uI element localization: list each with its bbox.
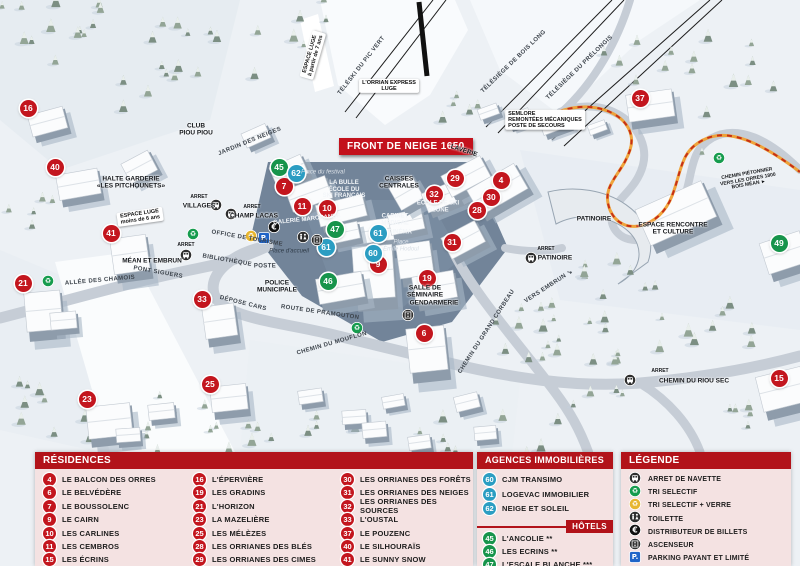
- legend-item-15: 15LES ÉCRINS: [43, 553, 109, 566]
- map-marker-residence-19[interactable]: 19: [419, 270, 436, 287]
- map-marker-residence-32[interactable]: 32: [426, 186, 443, 203]
- legend-item-19: 19LES GRADINS: [193, 486, 265, 499]
- legende-item-bus: ARRET DE NAVETTE: [629, 473, 721, 486]
- badge-21: 21: [193, 500, 206, 513]
- badge-10: 10: [43, 527, 56, 540]
- badge-7: 7: [43, 500, 56, 513]
- badge-23: 23: [193, 513, 206, 526]
- legend-item-40: 40LE SILHOURAÏS: [341, 540, 421, 553]
- map-marker-residence-31[interactable]: 31: [444, 234, 461, 251]
- legend-item-47: 47L'ESCALE BLANCHE ***: [483, 558, 592, 566]
- legend-item-label: LES ORRIANES DES NEIGES: [360, 488, 469, 497]
- legend-item-46: 46LES ECRINS **: [483, 545, 558, 558]
- legend-item-label: LE BOUSSOLENC: [62, 502, 129, 511]
- legend-item-7: 7LE BOUSSOLENC: [43, 500, 129, 513]
- panel-legende-body: ARRET DE NAVETTE♻TRI SELECTIF♻TRI SELECT…: [621, 469, 791, 566]
- badge-60: 60: [483, 473, 496, 486]
- map-marker-residence-6[interactable]: 6: [416, 325, 433, 342]
- map-marker-agence-62[interactable]: 62: [288, 165, 305, 182]
- legend-item-label: LE BELVÉDÈRE: [62, 488, 121, 497]
- legend-item-60: 60CJM TRANSIMO: [483, 473, 562, 486]
- map-marker-residence-16[interactable]: 16: [20, 100, 37, 117]
- panel-hotels-title: HÔTELS: [566, 520, 613, 533]
- badge-30: 30: [341, 473, 354, 486]
- legend-item-label: LES ORRIANES DES CIMES: [212, 555, 316, 564]
- map-marker-hotel-47[interactable]: 47: [327, 221, 344, 238]
- legend-item-label: NEIGE ET SOLEIL: [502, 504, 569, 513]
- badge-40: 40: [341, 540, 354, 553]
- map-marker-residence-25[interactable]: 25: [202, 376, 219, 393]
- legend-item-4: 4LE BALCON DES ORRES: [43, 473, 156, 486]
- map-marker-residence-21[interactable]: 21: [15, 275, 32, 292]
- legend-item-25: 25LES MÉLÈZES: [193, 527, 266, 540]
- legende-item-label: TOILETTE: [648, 516, 683, 523]
- map-marker-residence-10[interactable]: 10: [319, 200, 336, 217]
- legend-item-label: LE POUZENC: [360, 529, 410, 538]
- legend-item-30: 30LES ORRIANES DES FORÊTS: [341, 473, 471, 486]
- parking-icon: P.: [629, 550, 641, 566]
- map-marker-hotel-45[interactable]: 45: [271, 159, 288, 176]
- legende-item-label: TRI SELECTIF: [648, 489, 697, 496]
- legend-item-label: LE SILHOURAÏS: [360, 542, 421, 551]
- legend-item-10: 10LES CARLINES: [43, 527, 119, 540]
- legende-item-label: ARRET DE NAVETTE: [648, 476, 721, 483]
- legend-item-21: 21L'HORIZON: [193, 500, 255, 513]
- legend-item-label: LES CEMBROS: [62, 542, 119, 551]
- svg-text:♻: ♻: [632, 500, 638, 508]
- legend-item-label: LES ORRIANES DES BLÉS: [212, 542, 312, 551]
- legend-item-37: 37LE POUZENC: [341, 527, 410, 540]
- legende-item-recycle-glass: ♻TRI SELECTIF + VERRE: [629, 499, 731, 512]
- map-marker-residence-23[interactable]: 23: [79, 391, 96, 408]
- legend-item-label: LES ORRIANES DES FORÊTS: [360, 475, 471, 484]
- badge-15: 15: [43, 553, 56, 566]
- legend-item-label: L'HORIZON: [212, 502, 255, 511]
- legend-item-41: 41LE SUNNY SNOW: [341, 553, 426, 566]
- panel-agences: AGENCES IMMOBILIÈRES HÔTELS 60CJM TRANSI…: [477, 452, 613, 566]
- legend-item-9: 9LE CAIRN: [43, 513, 99, 526]
- badge-19: 19: [193, 486, 206, 499]
- legend-item-label: LES GRADINS: [212, 488, 265, 497]
- map-marker-hotel-46[interactable]: 46: [320, 273, 337, 290]
- legend-item-62: 62NEIGE ET SOLEIL: [483, 502, 569, 515]
- legende-item-label: PARKING PAYANT ET LIMITÉ: [648, 555, 749, 562]
- svg-text:♻: ♻: [632, 487, 638, 495]
- badge-61: 61: [483, 488, 496, 501]
- resort-map-page: FRONT DE NEIGE 1650 16404121332325711109…: [0, 0, 800, 566]
- badge-32: 32: [341, 500, 354, 513]
- legend-item-label: L'ÉPERVIÈRE: [212, 475, 263, 484]
- panel-residences-body: 4LE BALCON DES ORRES6LE BELVÉDÈRE7LE BOU…: [35, 469, 473, 566]
- legend-item-label: LES CARLINES: [62, 529, 119, 538]
- badge-46: 46: [483, 545, 496, 558]
- legend-item-label: LE SUNNY SNOW: [360, 555, 426, 564]
- map-marker-hotel-49[interactable]: 49: [771, 235, 788, 252]
- legend-item-label: L'ESCALE BLANCHE ***: [502, 560, 592, 566]
- legend-item-label: LOGEVAC IMMOBILIER: [502, 490, 589, 499]
- panel-residences-title: RÉSIDENCES: [35, 452, 473, 469]
- panel-agences-body: HÔTELS 60CJM TRANSIMO61LOGEVAC IMMOBILIE…: [477, 469, 613, 566]
- legend-item-label: LES ÉCRINS: [62, 555, 109, 564]
- legend-item-6: 6LE BELVÉDÈRE: [43, 486, 121, 499]
- panel-agences-title: AGENCES IMMOBILIÈRES: [477, 452, 613, 469]
- legend-item-33: 33L'OUSTAL: [341, 513, 398, 526]
- legend-item-23: 23LA MAZELIÈRE: [193, 513, 270, 526]
- legend-item-45: 45L'ANCOLIE **: [483, 532, 552, 545]
- badge-11: 11: [43, 540, 56, 553]
- map-marker-residence-15[interactable]: 15: [771, 370, 788, 387]
- map-marker-residence-11[interactable]: 11: [294, 198, 311, 215]
- badge-16: 16: [193, 473, 206, 486]
- badge-31: 31: [341, 486, 354, 499]
- map-marker-residence-41[interactable]: 41: [103, 225, 120, 242]
- map-marker-residence-4[interactable]: 4: [493, 172, 510, 189]
- legend-item-label: LE CAIRN: [62, 515, 99, 524]
- legend-item-label: LA MAZELIÈRE: [212, 515, 270, 524]
- panel-residences: RÉSIDENCES 4LE BALCON DES ORRES6LE BELVÉ…: [35, 452, 473, 566]
- map-marker-agence-61[interactable]: 61: [318, 239, 335, 256]
- map-marker-residence-30[interactable]: 30: [483, 189, 500, 206]
- legend-item-61: 61LOGEVAC IMMOBILIER: [483, 488, 589, 501]
- legende-item-parking: P.PARKING PAYANT ET LIMITÉ: [629, 552, 749, 565]
- map-marker-agence-61[interactable]: 61: [370, 225, 387, 242]
- badge-29: 29: [193, 553, 206, 566]
- legend-item-label: L'OUSTAL: [360, 515, 398, 524]
- legende-item-label: ASCENSEUR: [648, 542, 694, 549]
- badge-47: 47: [483, 558, 496, 566]
- svg-text:P.: P.: [632, 553, 639, 561]
- badge-25: 25: [193, 527, 206, 540]
- legende-item-label: TRI SELECTIF + VERRE: [648, 502, 731, 509]
- legende-item-label: DISTRIBUTEUR DE BILLETS: [648, 529, 748, 536]
- front-de-neige-banner: FRONT DE NEIGE 1650: [339, 138, 473, 155]
- legend-item-label: LE BALCON DES ORRES: [62, 475, 156, 484]
- legend-item-28: 28LES ORRIANES DES BLÉS: [193, 540, 312, 553]
- badge-9: 9: [43, 513, 56, 526]
- badge-45: 45: [483, 532, 496, 545]
- panel-legende-title: LÉGENDE: [621, 452, 791, 469]
- badge-28: 28: [193, 540, 206, 553]
- legend-item-32: 32LES ORRIANES DES SOURCES: [341, 500, 473, 513]
- badge-62: 62: [483, 502, 496, 515]
- legend-item-16: 16L'ÉPERVIÈRE: [193, 473, 263, 486]
- map-marker-residence-28[interactable]: 28: [469, 202, 486, 219]
- legend-item-29: 29LES ORRIANES DES CIMES: [193, 553, 316, 566]
- legend-item-label: LES ECRINS **: [502, 547, 558, 556]
- legend-item-label: LES MÉLÈZES: [212, 529, 266, 538]
- map-marker-residence-40[interactable]: 40: [47, 159, 64, 176]
- badge-4: 4: [43, 473, 56, 486]
- badge-41: 41: [341, 553, 354, 566]
- map-marker-agence-60[interactable]: 60: [365, 245, 382, 262]
- legende-item-euro: €DISTRIBUTEUR DE BILLETS: [629, 526, 748, 539]
- map-marker-residence-7[interactable]: 7: [276, 178, 293, 195]
- svg-text:€: €: [631, 526, 637, 535]
- map-marker-residence-33[interactable]: 33: [194, 291, 211, 308]
- legend-item-label: L'ANCOLIE **: [502, 534, 552, 543]
- map-marker-residence-29[interactable]: 29: [447, 170, 464, 187]
- panel-legende: LÉGENDE ARRET DE NAVETTE♻TRI SELECTIF♻TR…: [621, 452, 791, 566]
- badge-6: 6: [43, 486, 56, 499]
- hotels-divider: HÔTELS: [477, 526, 613, 528]
- legend-item-11: 11LES CEMBROS: [43, 540, 119, 553]
- legend-item-label: CJM TRANSIMO: [502, 475, 562, 484]
- badge-37: 37: [341, 527, 354, 540]
- map-marker-residence-37[interactable]: 37: [632, 90, 649, 107]
- badge-33: 33: [341, 513, 354, 526]
